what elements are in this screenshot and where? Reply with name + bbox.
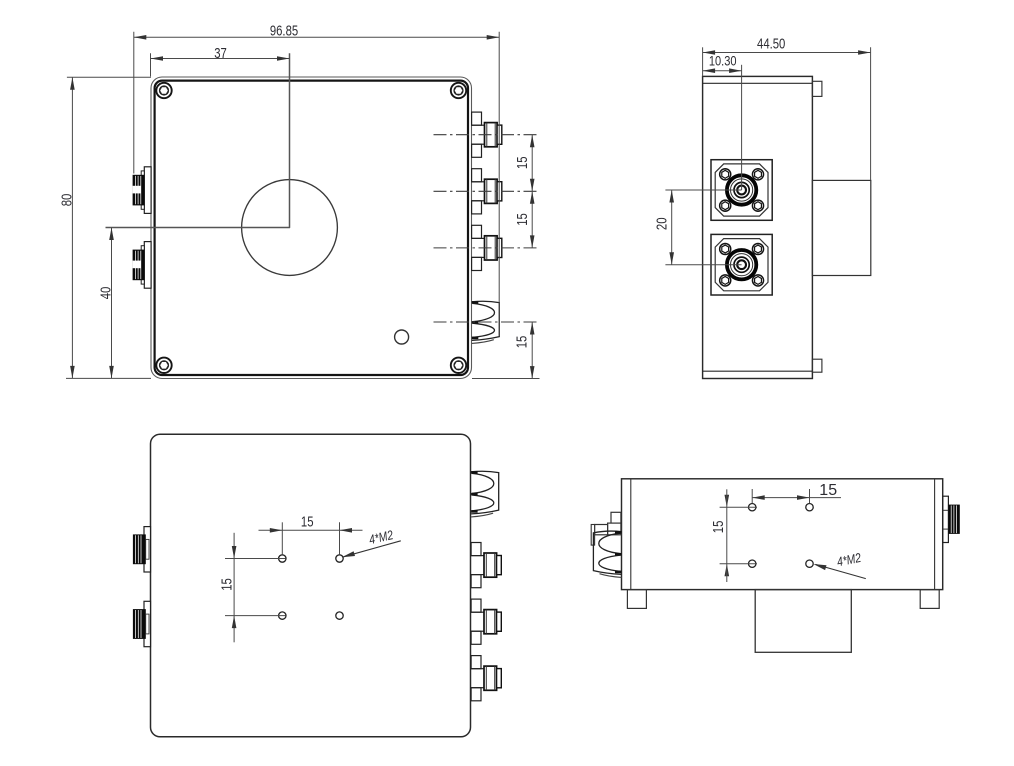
svg-text:15: 15 [514, 157, 531, 170]
svg-text:15: 15 [513, 336, 530, 349]
svg-text:15: 15 [218, 578, 235, 591]
svg-text:96.85: 96.85 [270, 22, 298, 39]
svg-text:37: 37 [214, 45, 227, 62]
svg-text:20: 20 [653, 218, 670, 231]
svg-text:44.50: 44.50 [757, 35, 785, 52]
svg-text:40: 40 [97, 287, 114, 300]
svg-text:15: 15 [819, 482, 837, 499]
svg-text:4*M2: 4*M2 [368, 528, 395, 548]
svg-text:4*M2: 4*M2 [836, 551, 863, 570]
svg-text:80: 80 [58, 194, 75, 207]
svg-text:15: 15 [710, 521, 727, 534]
svg-text:15: 15 [514, 213, 531, 226]
svg-text:10.30: 10.30 [709, 53, 737, 68]
svg-text:15: 15 [301, 513, 314, 530]
